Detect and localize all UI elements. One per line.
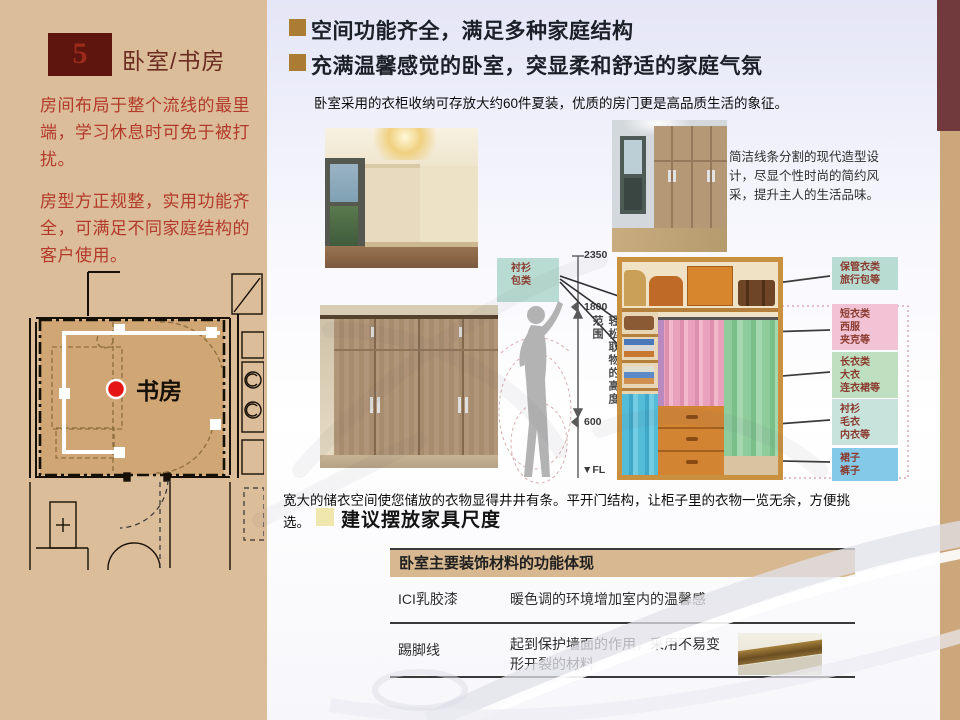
shelf-column: [622, 312, 658, 394]
label-long-clothes: 长衣类 大衣 连衣裙等: [832, 352, 898, 398]
label-skirts-pants: 裙子 裤子: [832, 448, 898, 481]
wardrobe-note: 简洁线条分割的现代造型设计，尽显个性时尚的简约风采，提升主人的生活品味。: [729, 148, 897, 205]
short-clothes-pink: [658, 320, 724, 406]
table-header: 卧室主要装饰材料的功能体现: [390, 550, 855, 577]
floorplan-drawing: 书房: [8, 270, 264, 570]
wardrobe-doors: [334, 319, 498, 455]
label-short-clothes: 短衣类 西服 夹克等: [832, 304, 898, 350]
dim-upper: 1800: [584, 301, 607, 313]
page-number: 5: [73, 37, 88, 70]
sidebar-paragraph-1: 房间布局于整个流线的最里端，学习休息时可免于被打扰。: [40, 92, 264, 173]
storage-text-line2: 选。: [283, 511, 310, 531]
skirts-blue: [622, 394, 658, 475]
floorplan-room-label: 书房: [136, 378, 182, 404]
heading-bullet-icon: [289, 19, 306, 36]
window-frame: [620, 136, 646, 214]
bedroom-photo: [325, 128, 478, 268]
sidebar-paragraph-2: 房型方正规整，实用功能齐全，可满足不同家庭结构的客户使用。: [40, 188, 264, 269]
bag: [624, 270, 646, 306]
suitcase: [738, 280, 775, 306]
storage-box: [687, 266, 733, 306]
dim-floor: ▼FL: [582, 464, 605, 476]
heading-1: 空间功能齐全，满足多种家庭结构: [311, 15, 634, 45]
label-shirts-knitwear: 衬衫 毛衣 内衣等: [832, 399, 898, 445]
ceiling-light: [365, 128, 445, 160]
window-frame: [325, 158, 365, 254]
basket: [649, 276, 683, 306]
dim-top: 2350: [584, 249, 607, 261]
table-border-bottom: [390, 676, 855, 678]
label-storage-clothes: 保管衣类 旅行包等: [832, 257, 898, 290]
wardrobe-interior-photo: [617, 257, 783, 480]
drawers: [658, 406, 724, 475]
wood-floor: [325, 246, 478, 268]
dim-lower: 600: [584, 416, 602, 428]
slide-canvas: 5 卧室/书房 房间布局于整个流线的最里端，学习休息时可免于被打扰。 房型方正规…: [0, 0, 960, 720]
built-in-wardrobe: [654, 126, 727, 228]
page-number-box: 5: [48, 33, 112, 76]
intro-text: 卧室采用的衣柜收纳可存放大约60件夏装，优质的房门更是高品质生活的象征。: [314, 92, 788, 112]
wardrobe-room-photo: [612, 120, 727, 252]
heading-bullet-icon: [289, 54, 306, 71]
section-title: 卧室/书房: [122, 42, 225, 76]
table-row1-material: ICI乳胶漆: [398, 589, 458, 609]
long-clothes-green: [724, 320, 778, 456]
suggestion-heading: 建议摆放家具尺度: [341, 505, 501, 532]
large-wardrobe-photo: [320, 305, 498, 468]
table-row2-material: 踢脚线: [398, 640, 440, 660]
table-row1-desc: 暖色调的环境增加室内的温馨感: [510, 589, 830, 609]
corner-maroon-bar: [937, 0, 960, 131]
table-row-divider: [390, 622, 855, 624]
skirting-board-photo: [738, 633, 822, 675]
table-row2-desc: 起到保护墙面的作用，采用不易变形开裂的材料: [510, 634, 728, 674]
heading-2: 充满温馨感觉的卧室，突显柔和舒适的家庭气氛: [311, 50, 763, 80]
room-marker-dot: [107, 380, 125, 398]
suggestion-bullet-icon: [316, 508, 334, 526]
